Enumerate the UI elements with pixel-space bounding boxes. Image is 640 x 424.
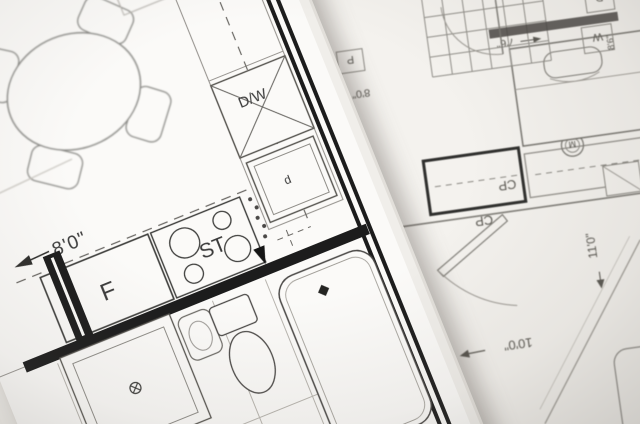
closet-label: CP [474,212,494,229]
pantry-label: P [346,53,355,66]
photo-of-floorplans: 10'0" 11'0" CP CP [0,0,640,424]
closet-thick: CP [423,148,526,215]
nightstand [603,161,640,196]
washer-label: W [591,30,604,43]
meter-label: M [568,139,577,150]
dimension-label: 8'0" [351,86,371,100]
closet-label: CP [497,176,517,193]
